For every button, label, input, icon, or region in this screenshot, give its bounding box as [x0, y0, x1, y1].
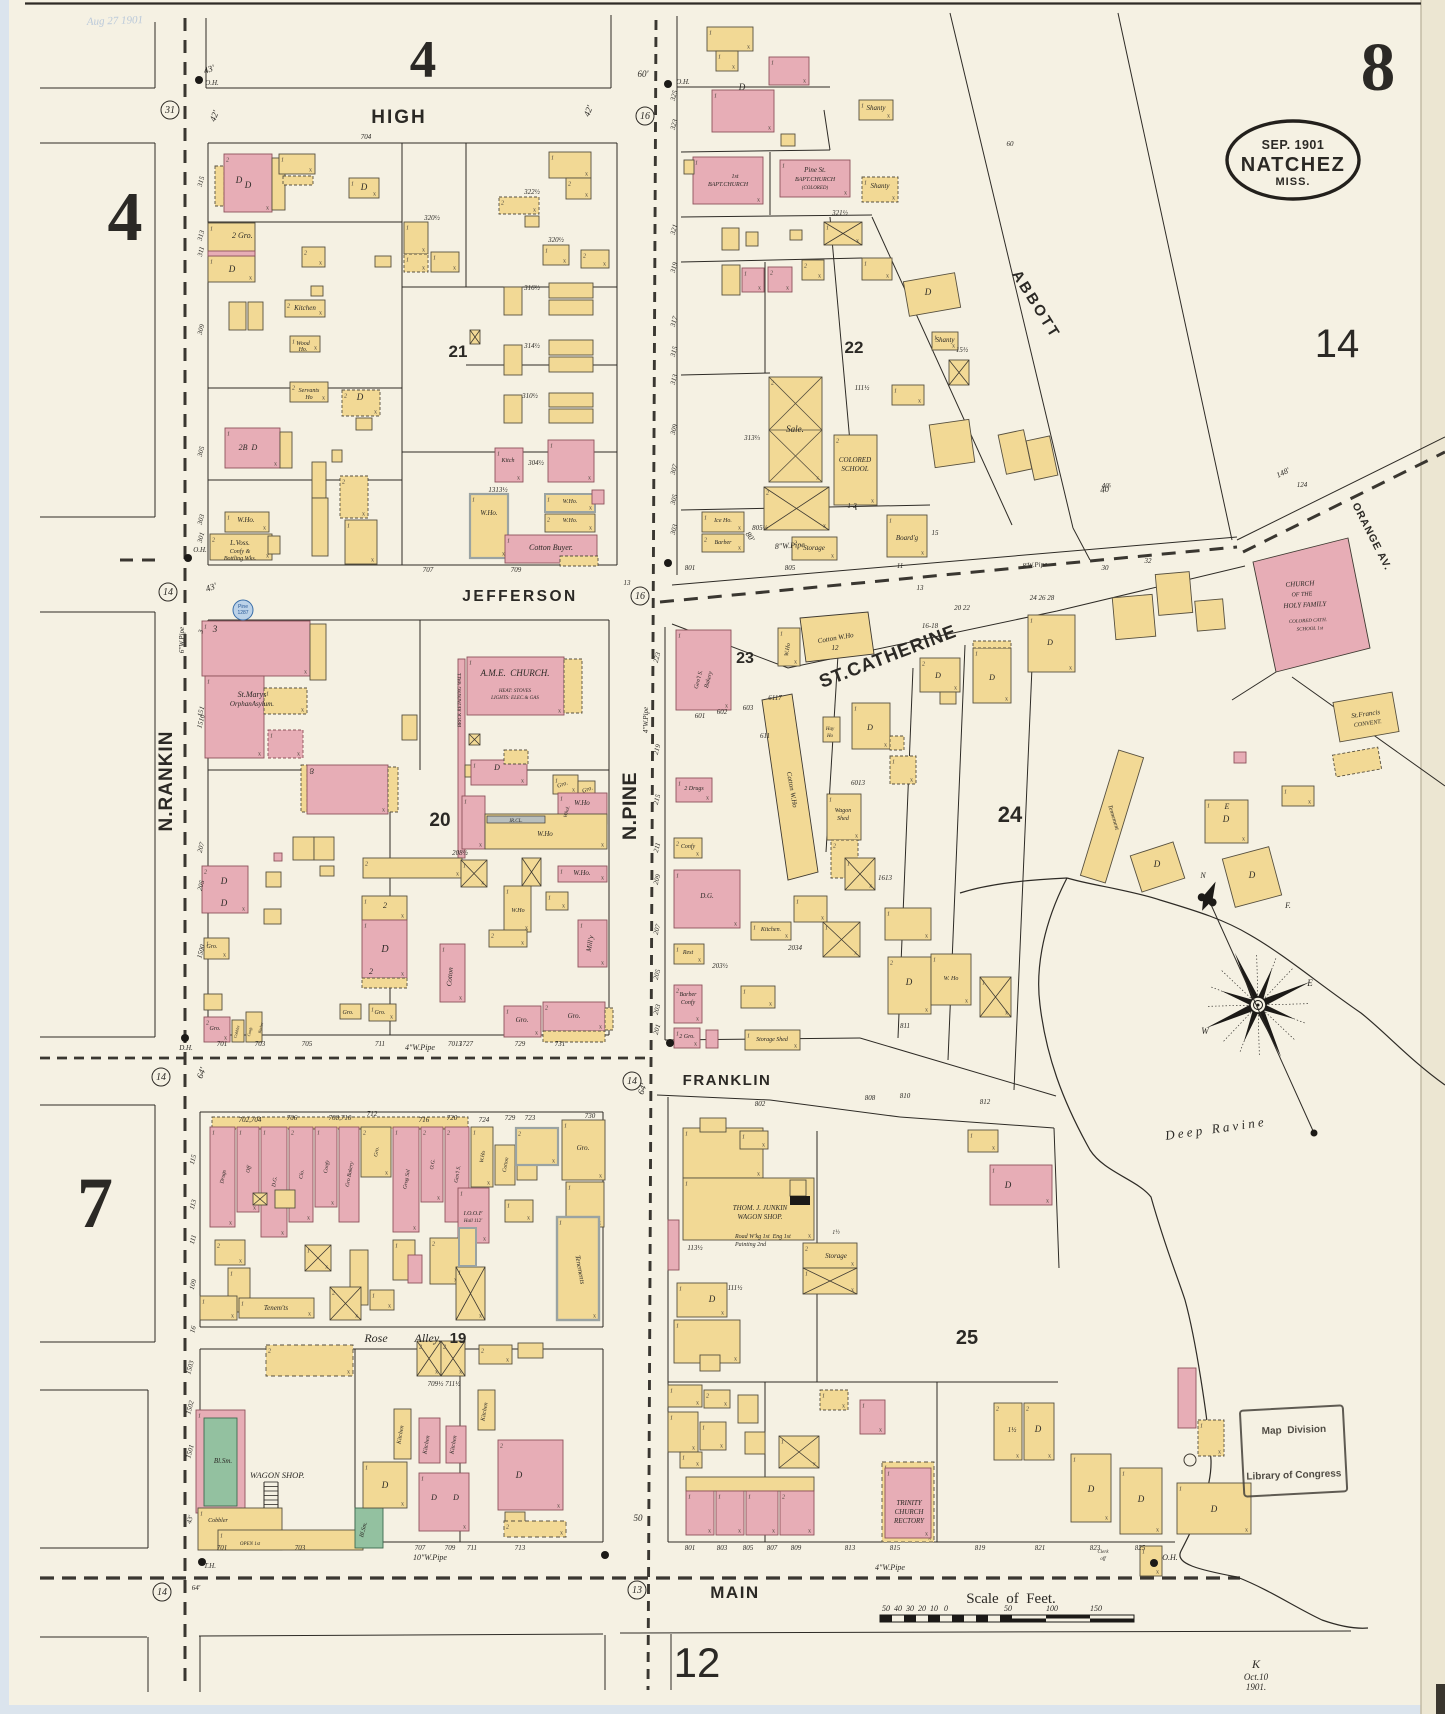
svg-text:x: x — [239, 1259, 242, 1265]
svg-text:x: x — [388, 1304, 391, 1310]
svg-text:Alley.: Alley. — [414, 1331, 442, 1345]
svg-text:1: 1 — [506, 1010, 509, 1016]
svg-text:x: x — [560, 1531, 563, 1537]
svg-text:2: 2 — [501, 201, 504, 207]
svg-text:Confy: Confy — [681, 843, 696, 850]
svg-text:22: 22 — [845, 338, 864, 357]
svg-text:Road W'kg 1st Eng 1st: Road W'kg 1st Eng 1st — [734, 1234, 791, 1240]
svg-text:x: x — [506, 1358, 509, 1364]
svg-text:8: 8 — [1361, 29, 1396, 105]
svg-text:x: x — [831, 554, 834, 560]
svg-text:x: x — [786, 286, 789, 292]
svg-text:1: 1 — [854, 707, 857, 713]
svg-text:x: x — [437, 1196, 440, 1202]
svg-text:x: x — [925, 934, 928, 940]
svg-text:1-2: 1-2 — [847, 502, 857, 510]
svg-text:1: 1 — [351, 182, 354, 188]
svg-text:1: 1 — [679, 1287, 682, 1293]
svg-text:13: 13 — [917, 584, 925, 592]
svg-text:x: x — [769, 1002, 772, 1008]
svg-text:x: x — [527, 1216, 530, 1222]
svg-text:2: 2 — [365, 862, 368, 868]
svg-text:1: 1 — [545, 249, 548, 255]
svg-text:x: x — [249, 276, 252, 282]
svg-text:Hall 112': Hall 112' — [463, 1219, 483, 1224]
svg-text:x: x — [557, 1504, 560, 1510]
svg-text:x: x — [921, 551, 924, 557]
svg-text:304½: 304½ — [527, 459, 545, 467]
svg-text:x: x — [521, 941, 524, 947]
svg-text:WAGON SHOP.: WAGON SHOP. — [250, 1470, 305, 1480]
svg-text:1: 1 — [889, 519, 892, 525]
svg-text:x: x — [487, 1181, 490, 1187]
svg-text:W. Ho: W. Ho — [944, 976, 959, 982]
svg-text:D: D — [866, 723, 873, 732]
svg-text:Kitch: Kitch — [501, 458, 515, 464]
svg-text:704: 704 — [361, 133, 372, 141]
svg-text:D: D — [244, 180, 252, 190]
svg-text:Gro.: Gro. — [375, 1010, 386, 1016]
svg-text:1: 1 — [560, 797, 563, 803]
svg-text:x: x — [708, 1529, 711, 1535]
svg-text:x: x — [879, 1428, 882, 1434]
svg-text:1: 1 — [864, 262, 867, 268]
svg-text:D.H.: D.H. — [178, 1044, 193, 1052]
svg-text:x: x — [884, 743, 887, 749]
svg-text:811: 811 — [900, 1022, 910, 1030]
svg-text:x: x — [694, 1042, 697, 1048]
svg-text:x: x — [401, 914, 404, 920]
svg-text:2: 2 — [996, 1407, 999, 1413]
svg-text:14: 14 — [627, 1076, 637, 1087]
svg-text:30: 30 — [905, 1604, 914, 1613]
svg-text:1: 1 — [718, 1495, 721, 1501]
svg-text:15½: 15½ — [956, 346, 969, 354]
svg-text:601: 601 — [695, 712, 706, 720]
svg-text:1: 1 — [469, 661, 472, 667]
svg-text:1: 1 — [748, 1495, 751, 1501]
svg-text:D: D — [934, 671, 941, 680]
svg-text:1: 1 — [212, 1131, 215, 1137]
svg-text:702,704: 702,704 — [239, 1116, 262, 1124]
svg-text:D: D — [1137, 1494, 1145, 1504]
svg-text:813: 813 — [845, 1544, 856, 1552]
svg-text:x: x — [808, 1529, 811, 1535]
svg-text:L.Voss.: L.Voss. — [229, 539, 250, 547]
svg-text:320½: 320½ — [547, 236, 565, 244]
svg-text:x: x — [401, 1502, 404, 1508]
svg-text:2: 2 — [204, 870, 207, 876]
svg-text:x: x — [483, 1237, 486, 1243]
svg-text:x: x — [721, 1311, 724, 1317]
svg-text:Shanty: Shanty — [866, 104, 886, 112]
svg-text:I.O.O.F: I.O.O.F — [463, 1211, 483, 1217]
svg-text:803: 803 — [717, 1544, 728, 1552]
svg-text:805: 805 — [785, 564, 796, 572]
svg-text:x: x — [517, 476, 520, 482]
svg-text:1901.: 1901. — [1246, 1682, 1266, 1692]
svg-text:x: x — [297, 752, 300, 758]
svg-text:THOM. J. JUNKIN: THOM. J. JUNKIN — [733, 1204, 788, 1212]
svg-text:19: 19 — [450, 1330, 467, 1347]
svg-text:1: 1 — [464, 800, 467, 806]
svg-text:W.Ho.: W.Ho. — [573, 869, 590, 877]
svg-text:703: 703 — [295, 1544, 306, 1552]
svg-text:x: x — [459, 996, 462, 1002]
svg-text:4"W.Pipe: 4"W.Pipe — [642, 707, 650, 733]
svg-text:Storage: Storage — [803, 544, 825, 552]
svg-text:1: 1 — [548, 896, 551, 902]
svg-text:LIGHTS: ELEC.& GAS: LIGHTS: ELEC.& GAS — [490, 696, 539, 701]
svg-text:D: D — [360, 182, 368, 192]
svg-text:113½: 113½ — [687, 1244, 703, 1252]
svg-text:2: 2 — [268, 1349, 271, 1355]
svg-text:x: x — [599, 1174, 602, 1180]
svg-text:20: 20 — [429, 810, 450, 831]
svg-text:Cobbler: Cobbler — [208, 1518, 228, 1524]
svg-text:13: 13 — [624, 579, 632, 587]
svg-text:1: 1 — [292, 340, 295, 346]
svg-text:1: 1 — [472, 498, 475, 504]
svg-text:50: 50 — [1004, 1604, 1012, 1613]
svg-text:815: 815 — [890, 1544, 901, 1552]
svg-text:2: 2 — [383, 901, 387, 910]
svg-text:50: 50 — [634, 1513, 644, 1523]
svg-text:Hay: Hay — [825, 727, 835, 732]
svg-text:322½: 322½ — [523, 188, 541, 196]
svg-text:24 26 28: 24 26 28 — [1030, 594, 1055, 602]
svg-text:1: 1 — [317, 1131, 320, 1137]
svg-text:x: x — [502, 552, 505, 558]
svg-text:708,710: 708,710 — [329, 1114, 352, 1122]
svg-text:x: x — [696, 1401, 699, 1407]
svg-text:124: 124 — [1297, 481, 1308, 489]
svg-text:2: 2 — [770, 271, 773, 277]
svg-text:x: x — [842, 1404, 845, 1410]
svg-text:W.Ho: W.Ho — [574, 799, 590, 807]
svg-text:OrphanAsylum.: OrphanAsylum. — [230, 700, 274, 708]
svg-text:x: x — [301, 708, 304, 714]
svg-text:1: 1 — [406, 226, 409, 232]
svg-text:10"W.Pipe: 10"W.Pipe — [413, 1553, 447, 1562]
svg-text:x: x — [734, 1357, 737, 1363]
svg-text:711: 711 — [467, 1544, 477, 1552]
svg-text:E: E — [1306, 978, 1313, 988]
svg-text:Servants: Servants — [299, 388, 320, 394]
svg-text:1: 1 — [887, 912, 890, 918]
svg-text:2 Gro.: 2 Gro. — [232, 231, 253, 240]
svg-text:1: 1 — [580, 924, 583, 930]
svg-text:2: 2 — [545, 1006, 548, 1012]
svg-text:2: 2 — [706, 1394, 709, 1400]
svg-text:D: D — [220, 876, 228, 886]
svg-text:D: D — [235, 175, 243, 185]
svg-text:1287: 1287 — [237, 610, 248, 616]
svg-text:0: 0 — [944, 1604, 948, 1613]
svg-text:O.H.: O.H. — [205, 79, 219, 87]
svg-text:321½: 321½ — [831, 209, 849, 217]
svg-text:812: 812 — [980, 1098, 991, 1106]
svg-text:723: 723 — [525, 1114, 536, 1122]
svg-text:2: 2 — [423, 1131, 426, 1137]
svg-text:Aug 27 1901: Aug 27 1901 — [86, 14, 144, 28]
svg-text:x: x — [724, 1402, 727, 1408]
svg-text:x: x — [925, 1008, 928, 1014]
svg-text:x: x — [422, 266, 425, 272]
svg-text:off: off — [1100, 1557, 1106, 1562]
svg-text:x: x — [738, 1529, 741, 1535]
svg-text:1: 1 — [230, 1272, 233, 1278]
svg-text:x: x — [762, 1143, 765, 1149]
svg-text:St.Marys: St.Marys — [238, 690, 267, 699]
svg-text:1: 1 — [1200, 1424, 1203, 1430]
svg-text:D: D — [1034, 1424, 1042, 1434]
svg-text:D: D — [515, 1470, 523, 1480]
svg-text:N: N — [1199, 871, 1206, 880]
svg-text:x: x — [808, 1234, 811, 1240]
svg-text:1: 1 — [861, 104, 864, 110]
svg-text:x: x — [1069, 666, 1072, 672]
svg-text:x: x — [319, 261, 322, 267]
svg-text:x: x — [371, 558, 374, 564]
svg-text:SCHOOL: SCHOOL — [841, 465, 868, 473]
svg-text:819: 819 — [975, 1544, 986, 1552]
svg-text:1: 1 — [822, 1394, 825, 1400]
svg-text:13: 13 — [632, 1585, 642, 1596]
svg-text:BAPT.CHURCH: BAPT.CHURCH — [795, 177, 836, 183]
svg-text:x: x — [734, 922, 737, 928]
svg-text:823: 823 — [1090, 1544, 1101, 1552]
svg-text:2: 2 — [782, 1495, 785, 1501]
svg-text:1: 1 — [239, 1131, 242, 1137]
svg-text:x: x — [479, 843, 482, 849]
svg-text:x: x — [562, 904, 565, 910]
svg-text:1: 1 — [395, 1131, 398, 1137]
svg-text:(COLORED): (COLORED) — [802, 186, 829, 191]
svg-text:Shanty: Shanty — [935, 336, 955, 344]
svg-text:x: x — [918, 399, 921, 405]
svg-text:x: x — [242, 907, 245, 913]
svg-text:x: x — [954, 686, 957, 692]
svg-text:x: x — [589, 506, 592, 512]
svg-text:x: x — [747, 45, 750, 51]
svg-text:2034: 2034 — [788, 944, 803, 952]
svg-text:14: 14 — [157, 1587, 167, 1598]
svg-text:x: x — [851, 1262, 854, 1268]
svg-text:x: x — [401, 972, 404, 978]
svg-text:720: 720 — [447, 1114, 458, 1122]
svg-text:1: 1 — [365, 1466, 368, 1472]
svg-text:2 Drugs: 2 Drugs — [684, 786, 704, 792]
svg-text:D: D — [356, 392, 364, 402]
svg-text:1: 1 — [688, 1495, 691, 1501]
svg-text:1: 1 — [781, 1440, 784, 1446]
svg-text:E: E — [1224, 802, 1230, 811]
svg-text:2: 2 — [481, 1349, 484, 1355]
svg-text:x: x — [585, 172, 588, 178]
svg-text:D: D — [1046, 638, 1053, 647]
svg-text:D: D — [924, 287, 932, 297]
svg-text:709: 709 — [445, 1544, 456, 1552]
svg-text:3: 3 — [309, 767, 314, 776]
svg-text:RECTORY: RECTORY — [893, 1517, 925, 1525]
svg-text:x: x — [385, 1171, 388, 1177]
svg-text:1: 1 — [753, 926, 756, 932]
svg-text:x: x — [757, 198, 760, 204]
svg-text:320½: 320½ — [423, 214, 441, 222]
svg-text:1: 1 — [347, 524, 350, 530]
svg-text:2: 2 — [304, 251, 307, 257]
svg-text:2: 2 — [500, 1444, 503, 1450]
svg-text:W.Ho.: W.Ho. — [563, 499, 578, 505]
svg-text:23: 23 — [736, 650, 754, 667]
svg-text:1: 1 — [547, 498, 550, 504]
svg-text:6013: 6013 — [851, 779, 866, 787]
svg-text:2: 2 — [583, 254, 586, 260]
svg-text:1: 1 — [568, 1186, 571, 1192]
svg-text:1: 1 — [241, 1302, 244, 1308]
svg-text:807: 807 — [767, 1544, 778, 1552]
svg-text:A.M.E. CHURCH.: A.M.E. CHURCH. — [480, 668, 550, 678]
svg-text:1: 1 — [1030, 619, 1033, 625]
svg-text:BAPT.CHURCH: BAPT.CHURCH — [708, 182, 749, 188]
svg-text:716: 716 — [419, 1116, 430, 1124]
svg-text:802: 802 — [755, 1100, 766, 1108]
svg-text:x: x — [818, 274, 821, 280]
svg-text:30: 30 — [1101, 564, 1110, 572]
svg-text:2: 2 — [922, 662, 925, 668]
svg-text:1: 1 — [473, 764, 476, 770]
svg-text:OPEN 1st: OPEN 1st — [240, 1542, 261, 1547]
svg-text:x: x — [1046, 1199, 1049, 1205]
svg-text:713: 713 — [515, 1544, 526, 1552]
svg-text:D: D — [988, 673, 995, 682]
svg-text:1: 1 — [685, 1182, 688, 1188]
svg-text:1: 1 — [395, 1244, 398, 1250]
svg-text:1: 1 — [796, 900, 799, 906]
svg-text:1: 1 — [227, 516, 230, 522]
svg-text:W.Ho: W.Ho — [511, 908, 524, 914]
svg-text:x: x — [593, 1314, 596, 1320]
svg-text:1: 1 — [507, 539, 510, 545]
svg-text:711: 711 — [375, 1040, 385, 1048]
svg-text:x: x — [266, 206, 269, 212]
svg-text:4: 4 — [108, 179, 143, 256]
svg-text:TRINITY: TRINITY — [896, 1499, 922, 1507]
svg-text:x: x — [223, 953, 226, 959]
svg-text:1: 1 — [670, 1416, 673, 1422]
svg-text:x: x — [601, 961, 604, 967]
svg-text:W.Ho.: W.Ho. — [480, 509, 497, 517]
svg-text:2: 2 — [568, 182, 571, 188]
svg-text:712: 712 — [367, 1110, 378, 1118]
svg-text:1: 1 — [702, 1426, 705, 1432]
svg-text:825: 825 — [1135, 1544, 1146, 1552]
svg-text:1: 1 — [204, 625, 207, 631]
svg-text:W.Ho: W.Ho — [537, 830, 553, 838]
svg-text:16: 16 — [635, 591, 645, 602]
svg-text:Shed: Shed — [837, 816, 850, 822]
svg-text:CHURCH: CHURCH — [1285, 579, 1315, 589]
svg-text:1: 1 — [270, 734, 273, 740]
svg-text:x: x — [308, 1312, 311, 1318]
svg-text:x: x — [965, 999, 968, 1005]
svg-text:x: x — [1156, 1528, 1159, 1534]
svg-text:Confy: Confy — [681, 999, 696, 1006]
svg-text:x: x — [803, 79, 806, 85]
svg-text:x: x — [588, 476, 591, 482]
svg-text:64': 64' — [192, 1584, 201, 1592]
svg-text:706: 706 — [287, 1114, 298, 1122]
svg-text:2: 2 — [890, 961, 893, 967]
svg-text:602: 602 — [717, 708, 728, 716]
svg-text:703: 703 — [255, 1040, 266, 1048]
svg-text:1: 1 — [670, 1389, 673, 1395]
svg-text:2 Gro.: 2 Gro. — [679, 1034, 694, 1040]
svg-text:F.: F. — [1284, 901, 1291, 910]
svg-text:1: 1 — [506, 890, 509, 896]
svg-text:x: x — [1245, 1528, 1248, 1534]
svg-text:x: x — [322, 396, 325, 402]
svg-text:1: 1 — [743, 990, 746, 996]
svg-text:1: 1 — [210, 260, 213, 266]
svg-text:x: x — [589, 526, 592, 532]
svg-text:1: 1 — [406, 258, 409, 264]
svg-text:Kitchen: Kitchen — [293, 304, 316, 312]
svg-text:2: 2 — [836, 439, 839, 445]
svg-text:Ho: Ho — [826, 734, 834, 739]
svg-text:x: x — [1218, 1450, 1221, 1456]
svg-text:x: x — [1005, 697, 1008, 703]
svg-text:809: 809 — [791, 1544, 802, 1552]
svg-text:x: x — [456, 872, 459, 878]
svg-text:D: D — [228, 264, 236, 274]
svg-text:x: x — [1242, 837, 1245, 843]
svg-text:CHURCH: CHURCH — [895, 1508, 925, 1516]
svg-text:2: 2 — [704, 538, 707, 544]
svg-text:203½: 203½ — [712, 962, 729, 970]
svg-text:24: 24 — [998, 802, 1023, 827]
svg-text:NATCHEZ: NATCHEZ — [1241, 154, 1346, 176]
svg-text:14: 14 — [163, 587, 173, 598]
svg-text:707: 707 — [423, 566, 434, 574]
svg-text:x: x — [785, 934, 788, 940]
svg-text:2: 2 — [676, 842, 679, 848]
svg-text:1: 1 — [676, 1324, 679, 1330]
svg-text:x: x — [768, 126, 771, 132]
svg-text:821: 821 — [1035, 1544, 1046, 1552]
svg-text:7: 7 — [77, 1163, 113, 1243]
svg-text:x: x — [535, 1031, 538, 1037]
svg-text:2: 2 — [344, 394, 347, 400]
svg-text:801: 801 — [685, 1544, 696, 1552]
svg-text:x: x — [263, 526, 266, 532]
svg-text:60: 60 — [1007, 140, 1015, 148]
svg-text:1: 1 — [771, 61, 774, 67]
svg-text:Gro.: Gro. — [516, 1016, 529, 1024]
svg-text:1: 1 — [992, 1169, 995, 1175]
svg-text:2B D: 2B D — [239, 443, 258, 452]
svg-text:6117: 6117 — [768, 694, 782, 702]
svg-text:1: 1 — [227, 432, 230, 438]
svg-text:x: x — [910, 778, 913, 784]
svg-text:Gro.: Gro. — [207, 944, 218, 950]
svg-text:O.H.: O.H. — [193, 546, 207, 554]
svg-text:4: 4 — [410, 31, 437, 89]
svg-text:801: 801 — [685, 564, 696, 572]
svg-text:N.RANKIN: N.RANKIN — [156, 731, 177, 832]
svg-text:1: 1 — [682, 1456, 685, 1462]
